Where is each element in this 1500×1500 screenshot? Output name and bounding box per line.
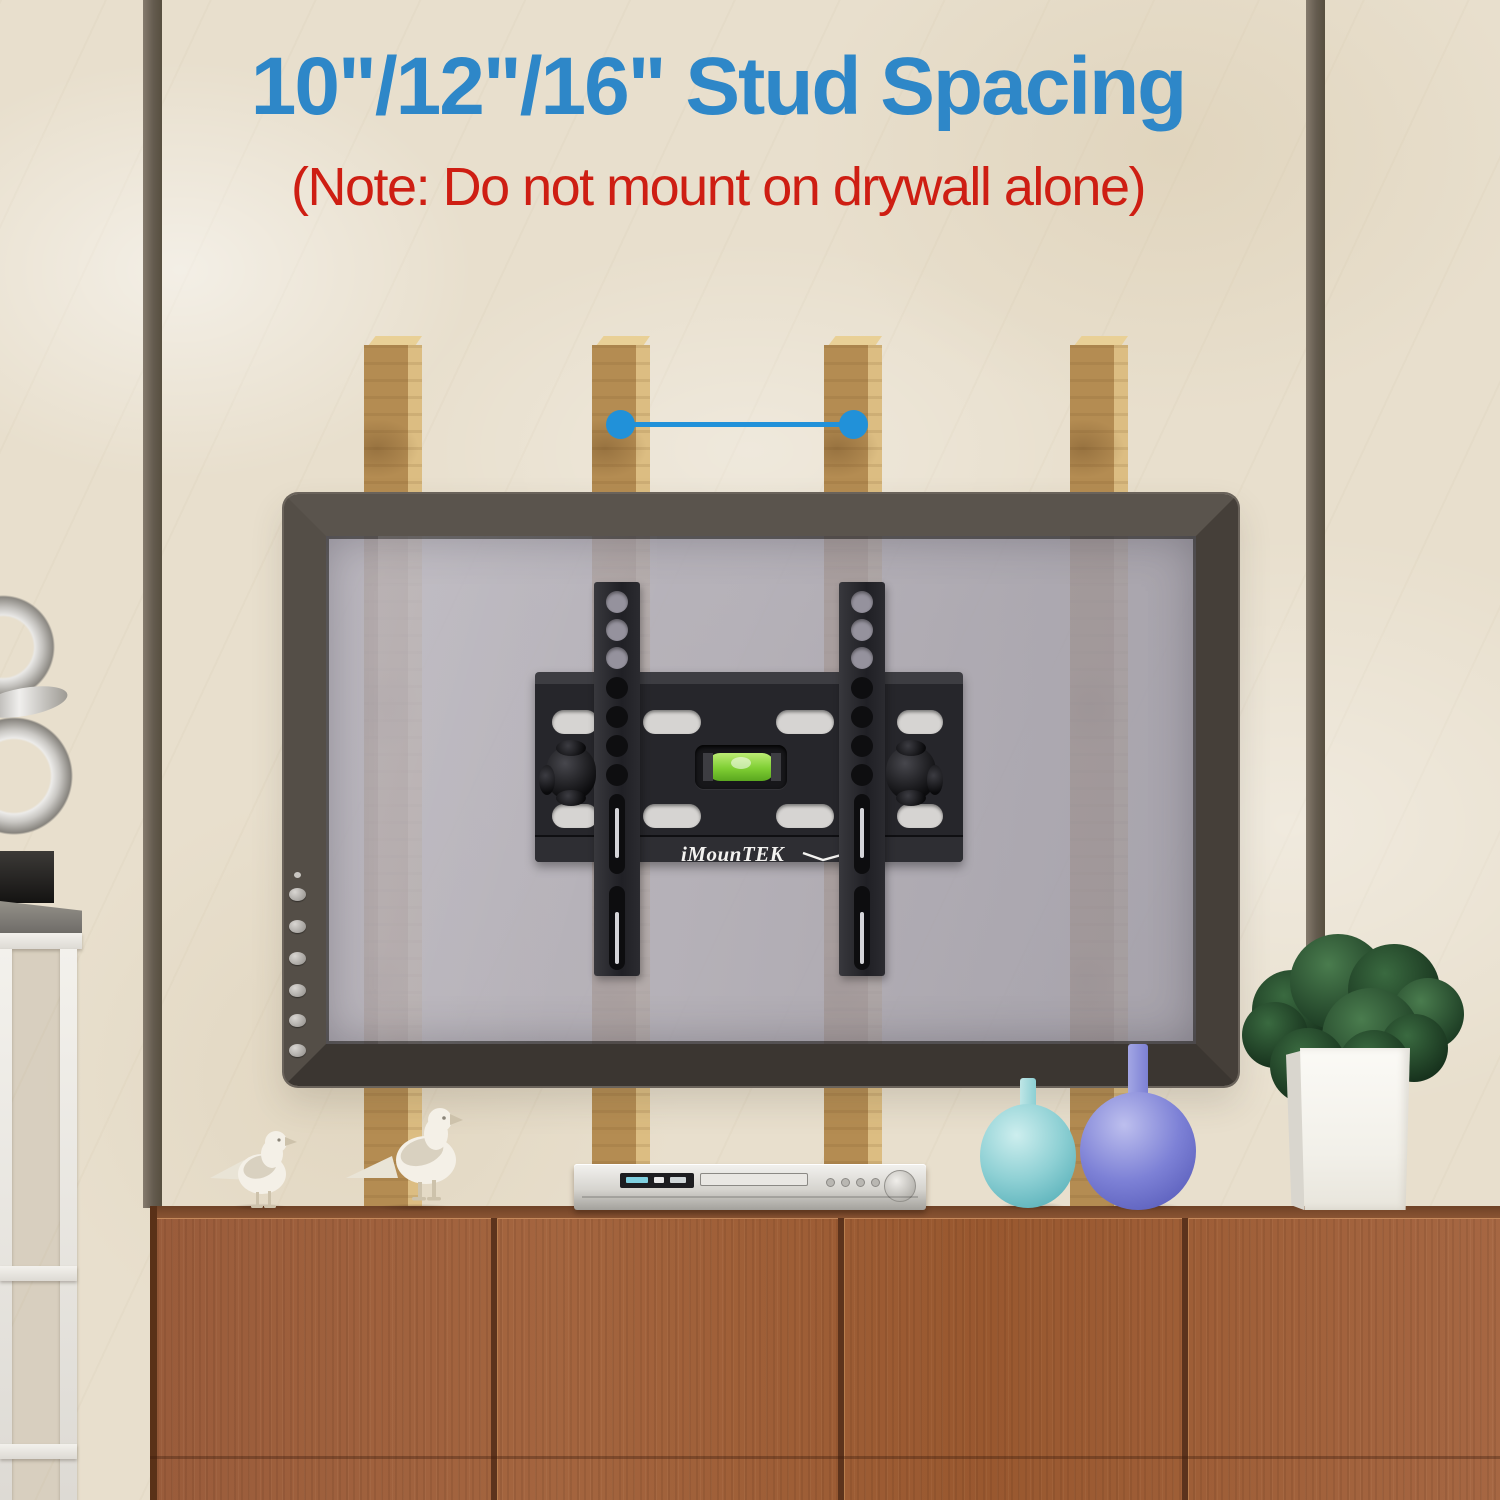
sculpture-pedestal — [0, 851, 54, 903]
mount-rail-left — [594, 582, 640, 976]
purple-vase — [1080, 1042, 1198, 1210]
tv-button-2 — [289, 920, 306, 933]
dvd-front-groove — [582, 1196, 918, 1198]
shelf-post-right — [60, 949, 77, 1500]
tv-button-1 — [289, 888, 306, 901]
tv-wall-mount: iMounTEK — [533, 580, 967, 980]
display-segment — [654, 1177, 664, 1183]
vial-cap-right — [771, 753, 781, 781]
rail-hole — [606, 619, 628, 641]
plate-slot — [776, 804, 834, 828]
purple-vase-body — [1080, 1092, 1196, 1210]
rail-hole — [851, 591, 873, 613]
bubble-level — [695, 745, 787, 789]
white-planter — [1300, 1048, 1410, 1210]
stud-spacing-dot-right — [839, 410, 868, 439]
display-segment — [626, 1177, 648, 1183]
rail-slot-pin — [615, 808, 619, 858]
rail-hole — [606, 647, 628, 669]
note-drywall-warning: (Note: Do not mount on drywall alone) — [0, 156, 1436, 218]
header: 10"/12"/16" Stud Spacing (Note: Do not m… — [0, 44, 1436, 218]
rail-slot-pin — [615, 912, 619, 964]
shelf-crossbar-middle — [0, 1266, 77, 1281]
display-segment — [670, 1177, 686, 1183]
plate-slot — [552, 710, 598, 734]
rail-hole — [851, 647, 873, 669]
tv-button-4 — [289, 984, 306, 997]
stud-spacing-dot-left — [606, 410, 635, 439]
dove-figurine-large — [346, 1094, 491, 1212]
dvd-button — [871, 1178, 880, 1187]
brand-logo: iMounTEK — [681, 842, 821, 867]
shelf-top-bar — [0, 933, 82, 949]
chrome-sculpture-ring — [0, 716, 74, 836]
plate-slot — [552, 804, 598, 828]
rail-hole — [851, 677, 873, 699]
shelf-inner-shade — [12, 949, 60, 1500]
tension-knob-left — [546, 746, 596, 800]
dvd-button — [826, 1178, 835, 1187]
knob-lobe — [927, 765, 943, 795]
plate-slot — [776, 710, 834, 734]
purple-vase-neck — [1128, 1044, 1148, 1096]
rail-hole — [606, 706, 628, 728]
tension-knob-right — [886, 746, 936, 800]
vial-cap-left — [703, 753, 713, 781]
dvd-display — [620, 1173, 694, 1188]
chrome-sculpture-upper-ring — [0, 594, 56, 700]
rail-hole — [851, 706, 873, 728]
dvd-player — [574, 1164, 926, 1210]
teal-vase-body — [980, 1104, 1076, 1208]
tv-button-5 — [289, 1014, 306, 1027]
knob-lobe — [556, 790, 586, 806]
knob-lobe — [556, 740, 586, 756]
shelf-post-left — [0, 949, 12, 1500]
rail-hole — [606, 764, 628, 786]
dove-figurine-small — [210, 1112, 305, 1212]
rail-slot-pin — [860, 912, 864, 964]
shelf-crossbar-bottom — [0, 1444, 77, 1459]
plate-slot — [643, 804, 701, 828]
rail-hole — [851, 735, 873, 757]
tv-power-led — [294, 872, 301, 878]
cabinet-bottom-rail — [150, 1456, 1500, 1459]
plate-slot — [643, 710, 701, 734]
teal-vase — [980, 1076, 1080, 1210]
plate-slot — [897, 804, 943, 828]
tv-button-3 — [289, 952, 306, 965]
rail-hole — [851, 619, 873, 641]
knob-lobe — [896, 790, 926, 806]
knob-lobe — [539, 765, 555, 795]
rail-slot-pin — [860, 808, 864, 858]
rail-hole — [606, 591, 628, 613]
title-stud-spacing: 10"/12"/16" Stud Spacing — [0, 44, 1436, 130]
rail-hole — [606, 735, 628, 757]
rail-hole — [606, 677, 628, 699]
knob-lobe — [896, 740, 926, 756]
plate-slot — [897, 710, 943, 734]
mount-rail-right — [839, 582, 885, 976]
wood-cabinet — [150, 1206, 1500, 1500]
dvd-button — [841, 1178, 850, 1187]
level-bubble — [731, 757, 751, 769]
rail-hole — [851, 764, 873, 786]
dvd-disc-tray — [700, 1173, 808, 1186]
stud-spacing-line — [621, 422, 853, 427]
dvd-button — [856, 1178, 865, 1187]
tv-button-6 — [289, 1044, 306, 1057]
